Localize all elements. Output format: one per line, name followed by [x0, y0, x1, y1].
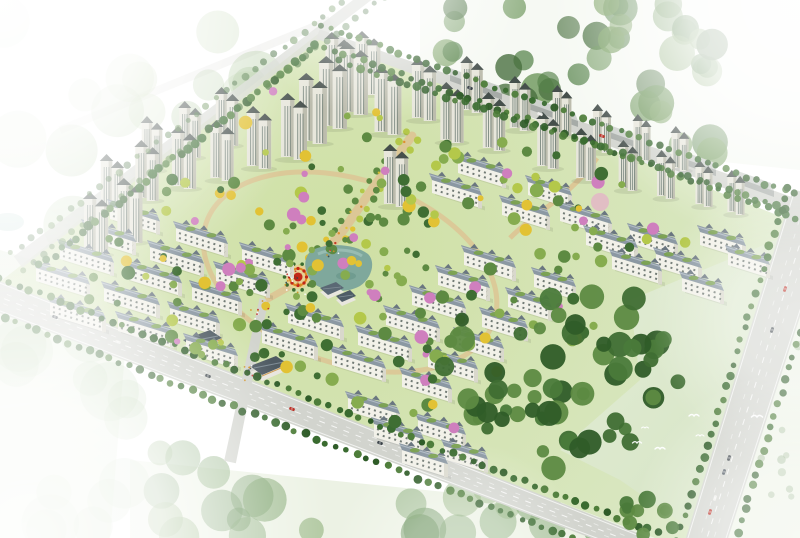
scene-svg	[0, 0, 800, 538]
layer-fog	[0, 0, 800, 538]
fog-vignette	[0, 0, 800, 538]
aerial-rendering-image	[0, 0, 800, 538]
